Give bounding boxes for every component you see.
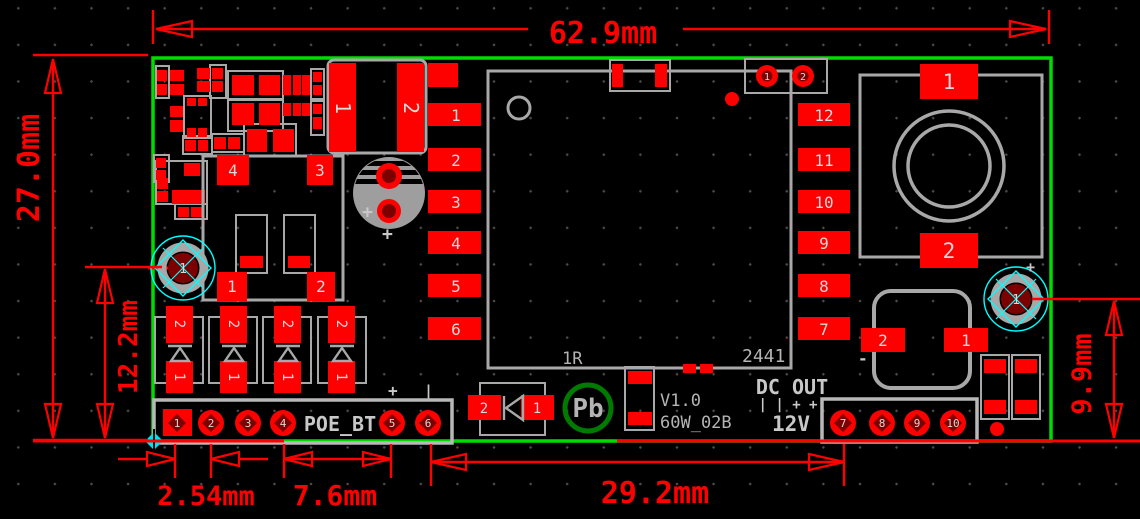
- ic-pad-12: 12: [814, 106, 833, 125]
- hole-plus-mark: +: [1026, 258, 1035, 276]
- smd-output-pair[interactable]: [981, 355, 1040, 436]
- pcb-layout-view[interactable]: 1 2 + + 4 3 1 2 1: [0, 0, 1140, 519]
- cap-right-pad-1: 1: [961, 331, 971, 350]
- transformer-pad-2-label: 2: [399, 102, 423, 114]
- diode3-pad2: 2: [279, 320, 295, 328]
- dim-board-width-label: 62.9mm: [549, 16, 657, 51]
- dc-out-polarity-marks: | | + +: [758, 397, 817, 413]
- aux-pad-2: 2: [800, 72, 806, 83]
- via: [990, 422, 1004, 436]
- ic-pad-7: 7: [819, 320, 829, 339]
- version-label: V1.0: [660, 391, 701, 411]
- dc-pad-7: 7: [840, 417, 847, 430]
- regulator-pad-3: 3: [315, 161, 325, 180]
- poe-pad-2: 2: [208, 417, 215, 430]
- poe-pad-6: 6: [425, 417, 432, 430]
- via: [725, 92, 739, 106]
- regulator-pad-4: 4: [228, 161, 238, 180]
- diode-array[interactable]: 2 2 2 2 1 1 1 1: [155, 306, 366, 393]
- mounting-hole-right-label: 1: [1012, 293, 1020, 308]
- poe-pad-1: 1: [174, 417, 181, 430]
- pb-free-label: Pb: [572, 394, 603, 424]
- diode3-pad1: 1: [279, 373, 295, 381]
- dc-pad-8: 8: [879, 417, 886, 430]
- main-ic[interactable]: 1 2 3 4 5 6 12 11 10 9 8 7 1R 2441: [428, 71, 850, 373]
- aux-header[interactable]: 1 2: [725, 59, 827, 106]
- dim-board-width: 62.9mm: [153, 10, 1049, 51]
- regulator-pad-2: 2: [316, 277, 326, 296]
- dim-group: 7.6mm: [284, 452, 391, 512]
- pb-free-logo: Pb: [565, 385, 611, 431]
- poe-bt-label: POE_BT: [304, 412, 376, 436]
- ic-pad-4: 4: [451, 234, 461, 253]
- dim-hole-left: 12.2mm: [85, 267, 162, 438]
- pcb-editor-canvas[interactable]: 1 2 + + 4 3 1 2 1: [0, 0, 1140, 519]
- pin1-marker: [508, 97, 530, 119]
- transformer[interactable]: 1 2: [328, 60, 426, 153]
- diode2-pad1: 1: [225, 373, 241, 381]
- dim-hole-right: 9.9mm: [1032, 299, 1140, 438]
- ic-pad-10: 10: [814, 193, 833, 212]
- smd-diode[interactable]: 2 1: [468, 383, 554, 435]
- ic-note-1r: 1R: [562, 349, 583, 369]
- poe-plus-mark: +: [388, 381, 398, 400]
- ic-note-2441: 2441: [742, 346, 785, 367]
- diode4-pad2: 2: [333, 320, 349, 328]
- inductor[interactable]: 1 2: [860, 64, 1042, 268]
- dc-out-label: DC OUT: [756, 375, 828, 399]
- diode2-pad2: 2: [225, 320, 241, 328]
- dim-hole-left-label: 12.2mm: [114, 300, 144, 394]
- dc-voltage-label: 12V: [772, 412, 810, 436]
- ic-pad-2: 2: [451, 151, 461, 170]
- smd-top-center[interactable]: [610, 60, 670, 91]
- ic-pad-6: 6: [451, 320, 461, 339]
- ic-pad-9: 9: [819, 234, 829, 253]
- smd-diode-pad-1: 1: [533, 401, 541, 417]
- smd-vertical-center[interactable]: [625, 367, 654, 430]
- cap-left-plus-mark2: +: [382, 224, 393, 245]
- dc-pad-9: 9: [914, 417, 921, 430]
- cap-left-plus-mark: +: [362, 202, 373, 223]
- cap-right-pad-2: 2: [878, 331, 888, 350]
- inductor-pad-2: 2: [943, 239, 956, 263]
- ic-pad-1: 1: [451, 106, 461, 125]
- dc-out-connector[interactable]: 7 8 9 10: [822, 399, 977, 442]
- aux-pad-1: 1: [764, 72, 770, 83]
- transformer-pad-1-label: 1: [331, 102, 355, 114]
- poe-pad-3: 3: [245, 417, 252, 430]
- mounting-hole-right[interactable]: 1 +: [984, 258, 1048, 331]
- ic-pad-11: 11: [814, 151, 833, 170]
- dim-group-label: 7.6mm: [293, 479, 377, 512]
- ic-pad-3: 3: [451, 193, 461, 212]
- dc-pad-10: 10: [946, 417, 959, 430]
- ic-pad-8: 8: [819, 277, 829, 296]
- poe-bt-connector[interactable]: 1 2 3 4 5 6 POE_BT: [154, 400, 452, 443]
- diode1-pad2: 2: [171, 320, 187, 328]
- cap-right-minus-mark: -: [858, 349, 868, 368]
- smd-diode-pad-2: 2: [480, 401, 488, 417]
- capacitor-right[interactable]: 2 1 -: [858, 291, 988, 388]
- poe-pad-4: 4: [280, 417, 287, 430]
- dim-span-label: 29.2mm: [601, 476, 709, 511]
- dim-hole-right-label: 9.9mm: [1067, 333, 1098, 414]
- ic-pad-5: 5: [451, 277, 461, 296]
- inductor-pad-1: 1: [943, 70, 956, 94]
- model-label: 60W_02B: [660, 413, 732, 433]
- mounting-hole-left-label: 1: [179, 262, 187, 277]
- regulator-pad-1: 1: [227, 277, 237, 296]
- poe-pad-5: 5: [389, 417, 396, 430]
- dim-pitch: 2.54mm: [118, 452, 268, 512]
- dim-board-height-label: 27.0mm: [12, 114, 47, 222]
- dim-span: 29.2mm: [431, 454, 844, 511]
- dim-pitch-label: 2.54mm: [157, 481, 255, 512]
- capacitor-left[interactable]: + +: [350, 157, 428, 245]
- diode1-pad1: 1: [171, 373, 187, 381]
- poe-minus-mark: |: [424, 382, 433, 401]
- diode4-pad1: 1: [333, 373, 349, 381]
- regulator[interactable]: 4 3 1 2: [203, 155, 343, 301]
